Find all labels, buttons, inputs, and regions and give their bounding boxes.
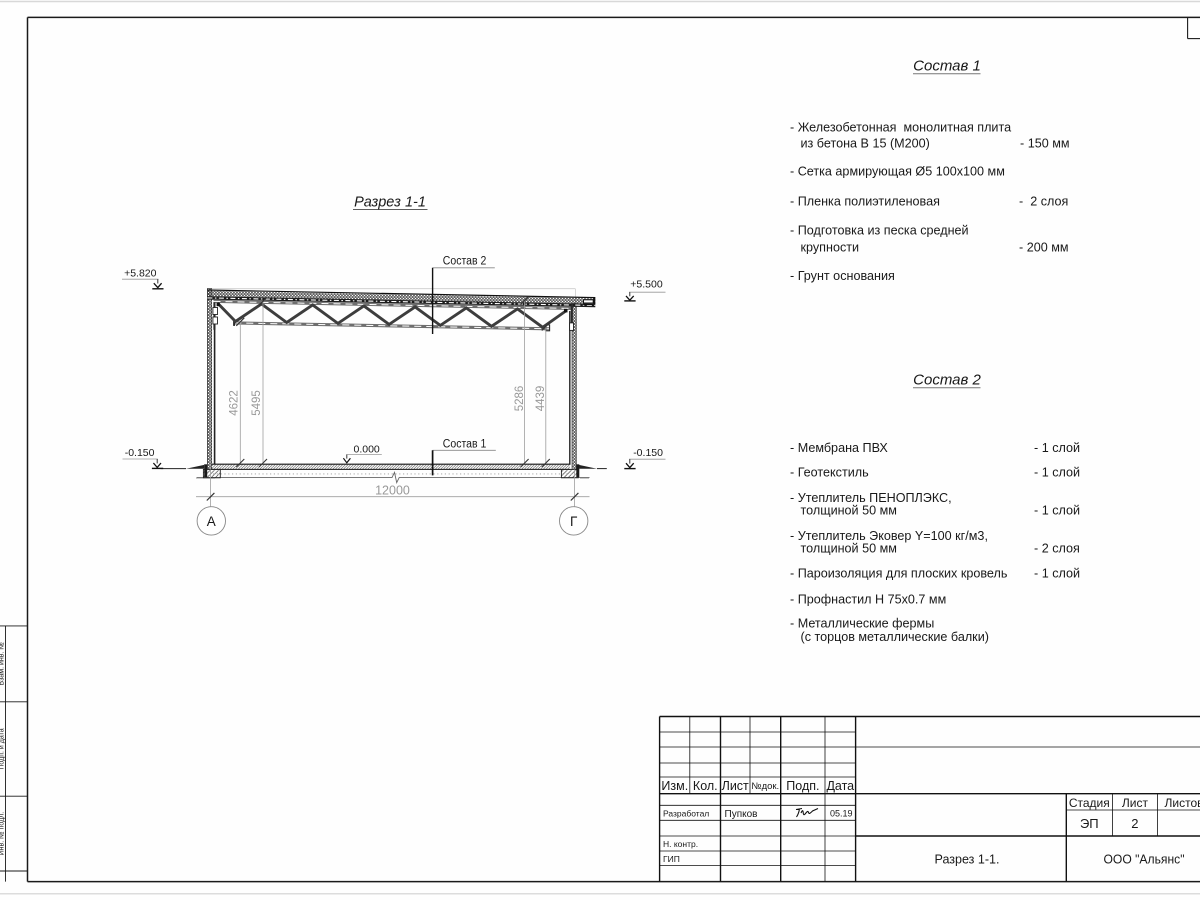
svg-text:из бетона В 15 (М200): из бетона В 15 (М200) xyxy=(801,136,930,150)
svg-text:Пупков: Пупков xyxy=(725,809,758,820)
svg-text:ООО "Альянс": ООО "Альянс" xyxy=(1104,851,1185,866)
svg-text:- 1 слой: - 1 слой xyxy=(1034,504,1080,518)
svg-text:А: А xyxy=(207,514,216,529)
svg-text:2: 2 xyxy=(1131,816,1138,831)
svg-text:ГИП: ГИП xyxy=(663,854,680,864)
svg-text:Листов: Листов xyxy=(1165,796,1200,810)
svg-text:Состав 2: Состав 2 xyxy=(443,255,487,267)
svg-text:- Грунт основания: - Грунт основания xyxy=(790,269,895,283)
svg-text:- Подготовка из песка средней: - Подготовка из песка средней xyxy=(790,224,969,238)
svg-text:4622: 4622 xyxy=(228,390,240,416)
svg-text:- 150 мм: - 150 мм xyxy=(1020,136,1070,150)
svg-text:Состав 2: Состав 2 xyxy=(913,371,981,388)
svg-text:05.19: 05.19 xyxy=(830,809,853,819)
svg-text:Лист: Лист xyxy=(722,779,749,793)
svg-text:№док.: №док. xyxy=(751,781,779,792)
svg-text:- 200 мм: - 200 мм xyxy=(1019,241,1069,255)
svg-text:Подп. и дата: Подп. и дата xyxy=(0,728,5,769)
svg-text:Лист: Лист xyxy=(1122,796,1149,810)
svg-text:- Мембрана ПВХ: - Мембрана ПВХ xyxy=(790,441,888,455)
svg-text:Разрез 1-1.: Разрез 1-1. xyxy=(935,851,1000,866)
svg-text:-0.150: -0.150 xyxy=(125,447,155,459)
svg-text:0.000: 0.000 xyxy=(354,444,380,456)
svg-text:5495: 5495 xyxy=(251,390,263,416)
svg-text:- Железобетонная монолитная п: - Железобетонная монолитная плита xyxy=(790,120,1011,134)
svg-text:толщиной 50 мм: толщиной 50 мм xyxy=(801,504,897,518)
svg-text:крупности: крупности xyxy=(801,241,860,255)
svg-text:Кол.: Кол. xyxy=(693,779,718,793)
svg-text:- 1 слой: - 1 слой xyxy=(1034,441,1080,455)
svg-text:Состав 1: Состав 1 xyxy=(443,438,487,450)
svg-text:- 2 слоя: - 2 слоя xyxy=(1019,194,1068,208)
svg-text:Дата: Дата xyxy=(826,779,854,793)
svg-text:5286: 5286 xyxy=(514,386,526,412)
svg-text:4439: 4439 xyxy=(535,386,547,412)
svg-text:- 2 слоя: - 2 слоя xyxy=(1034,542,1080,556)
svg-text:- Пароизоляция для плоских кро: - Пароизоляция для плоских кровель xyxy=(790,567,1008,581)
svg-text:Состав 1: Состав 1 xyxy=(913,58,981,75)
svg-text:- Сетка армирующая Ø5 100х100: - Сетка армирующая Ø5 100х100 мм xyxy=(790,165,1005,179)
svg-text:+5.500: +5.500 xyxy=(630,278,663,290)
svg-text:- Геотекстиль: - Геотекстиль xyxy=(790,466,869,480)
svg-text:- Пленка полиэтиленовая: - Пленка полиэтиленовая xyxy=(790,194,940,208)
svg-text:- Профнастил Н 75х0.7 мм: - Профнастил Н 75х0.7 мм xyxy=(790,593,946,607)
svg-text:Инв. № подл.: Инв. № подл. xyxy=(0,812,5,856)
svg-text:- 1 слой: - 1 слой xyxy=(1034,466,1080,480)
svg-text:ЭП: ЭП xyxy=(1080,816,1099,831)
svg-text:Изм.: Изм. xyxy=(661,779,688,793)
svg-text:Взам. инв. №: Взам. инв. № xyxy=(0,642,5,685)
svg-text:- 1 слой: - 1 слой xyxy=(1034,567,1080,581)
svg-text:-0.150: -0.150 xyxy=(633,447,663,459)
svg-text:Подп.: Подп. xyxy=(786,779,819,793)
svg-text:(с торцов металлические балки): (с торцов металлические балки) xyxy=(801,630,989,644)
svg-text:Н. контр.: Н. контр. xyxy=(663,839,698,849)
svg-text:Разработал: Разработал xyxy=(663,809,709,819)
svg-text:Разрез 1-1: Разрез 1-1 xyxy=(354,195,426,211)
svg-text:- Металлические фермы: - Металлические фермы xyxy=(790,617,934,631)
svg-text:Стадия: Стадия xyxy=(1069,796,1110,810)
svg-text:+5.820: +5.820 xyxy=(124,268,157,280)
svg-text:толщиной 50 мм: толщиной 50 мм xyxy=(801,542,897,556)
svg-text:12000: 12000 xyxy=(375,483,410,497)
svg-text:Г: Г xyxy=(570,514,578,529)
